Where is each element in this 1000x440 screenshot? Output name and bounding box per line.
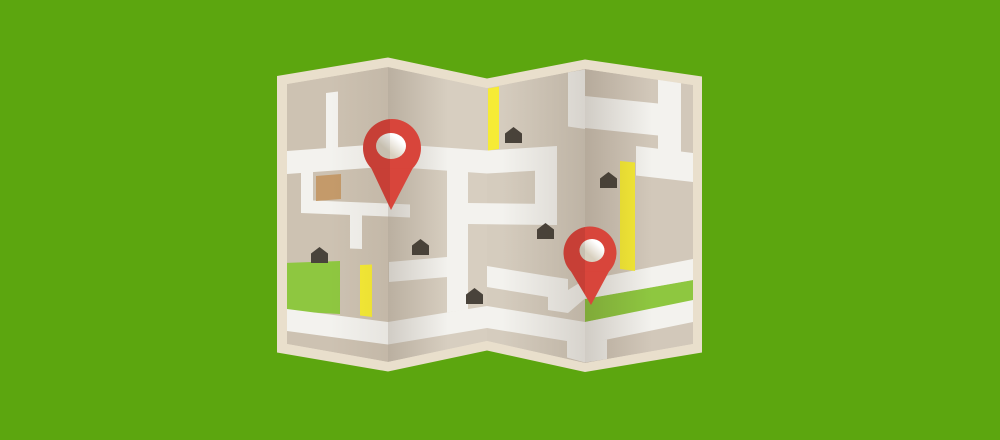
illustration-canvas	[0, 0, 1000, 440]
folded-map-illustration	[0, 0, 1000, 440]
map-content	[285, 67, 693, 363]
fold-shading	[287, 67, 693, 363]
